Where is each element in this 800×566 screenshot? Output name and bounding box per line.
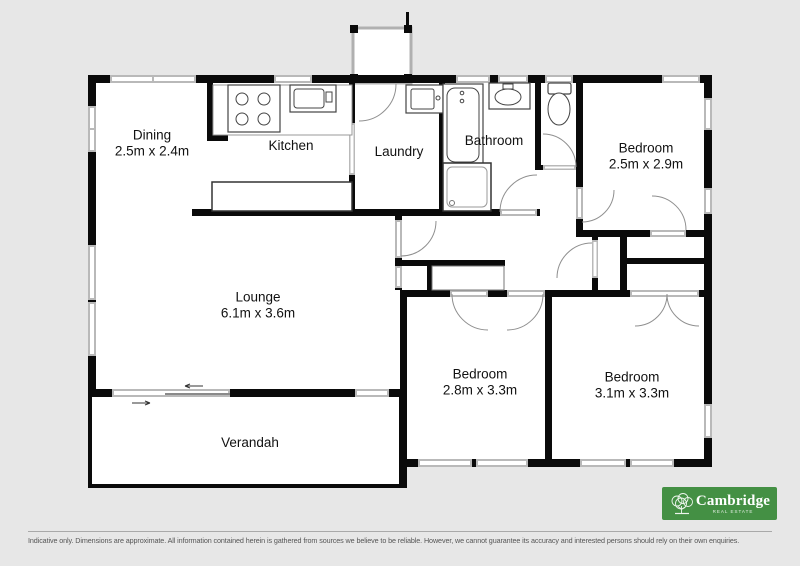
room-name: Lounge — [221, 290, 295, 306]
agency-logo: Cambridge Real Estate — [662, 487, 777, 520]
room-name: Verandah — [221, 435, 279, 451]
room-dimensions: 2.8m x 3.3m — [443, 383, 517, 399]
room-label-bedroom-bottom-left: Bedroom 2.8m x 3.3m — [443, 367, 517, 400]
room-name: Bedroom — [609, 141, 683, 157]
room-dimensions: 2.5m x 2.9m — [609, 157, 683, 173]
vanity-sink-icon — [489, 83, 530, 109]
linen-closet — [432, 266, 504, 290]
room-dimensions: 3.1m x 3.3m — [595, 386, 669, 402]
disclaimer-text: Indicative only. Dimensions are approxim… — [28, 536, 739, 545]
room-label-bedroom-top-right: Bedroom 2.5m x 2.9m — [609, 141, 683, 174]
room-name: Bathroom — [465, 133, 524, 149]
floorplan-page: Dining 2.5m x 2.4m Kitchen Laundry Bathr… — [0, 0, 800, 566]
toilet-icon — [548, 83, 571, 125]
room-label-bathroom: Bathroom — [465, 133, 524, 149]
room-label-verandah: Verandah — [221, 435, 279, 451]
brand-text: Cambridge Real Estate — [695, 494, 771, 514]
entry-porch — [350, 12, 412, 83]
room-name: Dining — [115, 128, 189, 144]
room-label-lounge: Lounge 6.1m x 3.6m — [221, 290, 295, 323]
room-dimensions: 6.1m x 3.6m — [221, 306, 295, 322]
room-dimensions: 2.5m x 2.4m — [115, 144, 189, 160]
tree-icon — [669, 492, 695, 516]
kitchen-sink-icon — [290, 85, 336, 112]
agency-name: Cambridge — [695, 494, 771, 509]
room-name: Bedroom — [595, 370, 669, 386]
laundry-tub-icon — [406, 85, 443, 113]
room-name: Bedroom — [443, 367, 517, 383]
stove-icon — [228, 85, 280, 132]
shower-icon — [443, 163, 491, 211]
agency-tagline: Real Estate — [695, 509, 771, 514]
room-label-kitchen: Kitchen — [268, 138, 313, 154]
room-label-bedroom-bottom-right: Bedroom 3.1m x 3.3m — [595, 370, 669, 403]
room-name: Kitchen — [268, 138, 313, 154]
room-name: Laundry — [375, 144, 424, 160]
floor-plan-drawing — [0, 0, 800, 566]
bathtub-icon — [443, 84, 483, 166]
room-label-laundry: Laundry — [375, 144, 424, 160]
room-label-dining: Dining 2.5m x 2.4m — [115, 128, 189, 161]
disclaimer-bar: Indicative only. Dimensions are approxim… — [28, 531, 772, 545]
